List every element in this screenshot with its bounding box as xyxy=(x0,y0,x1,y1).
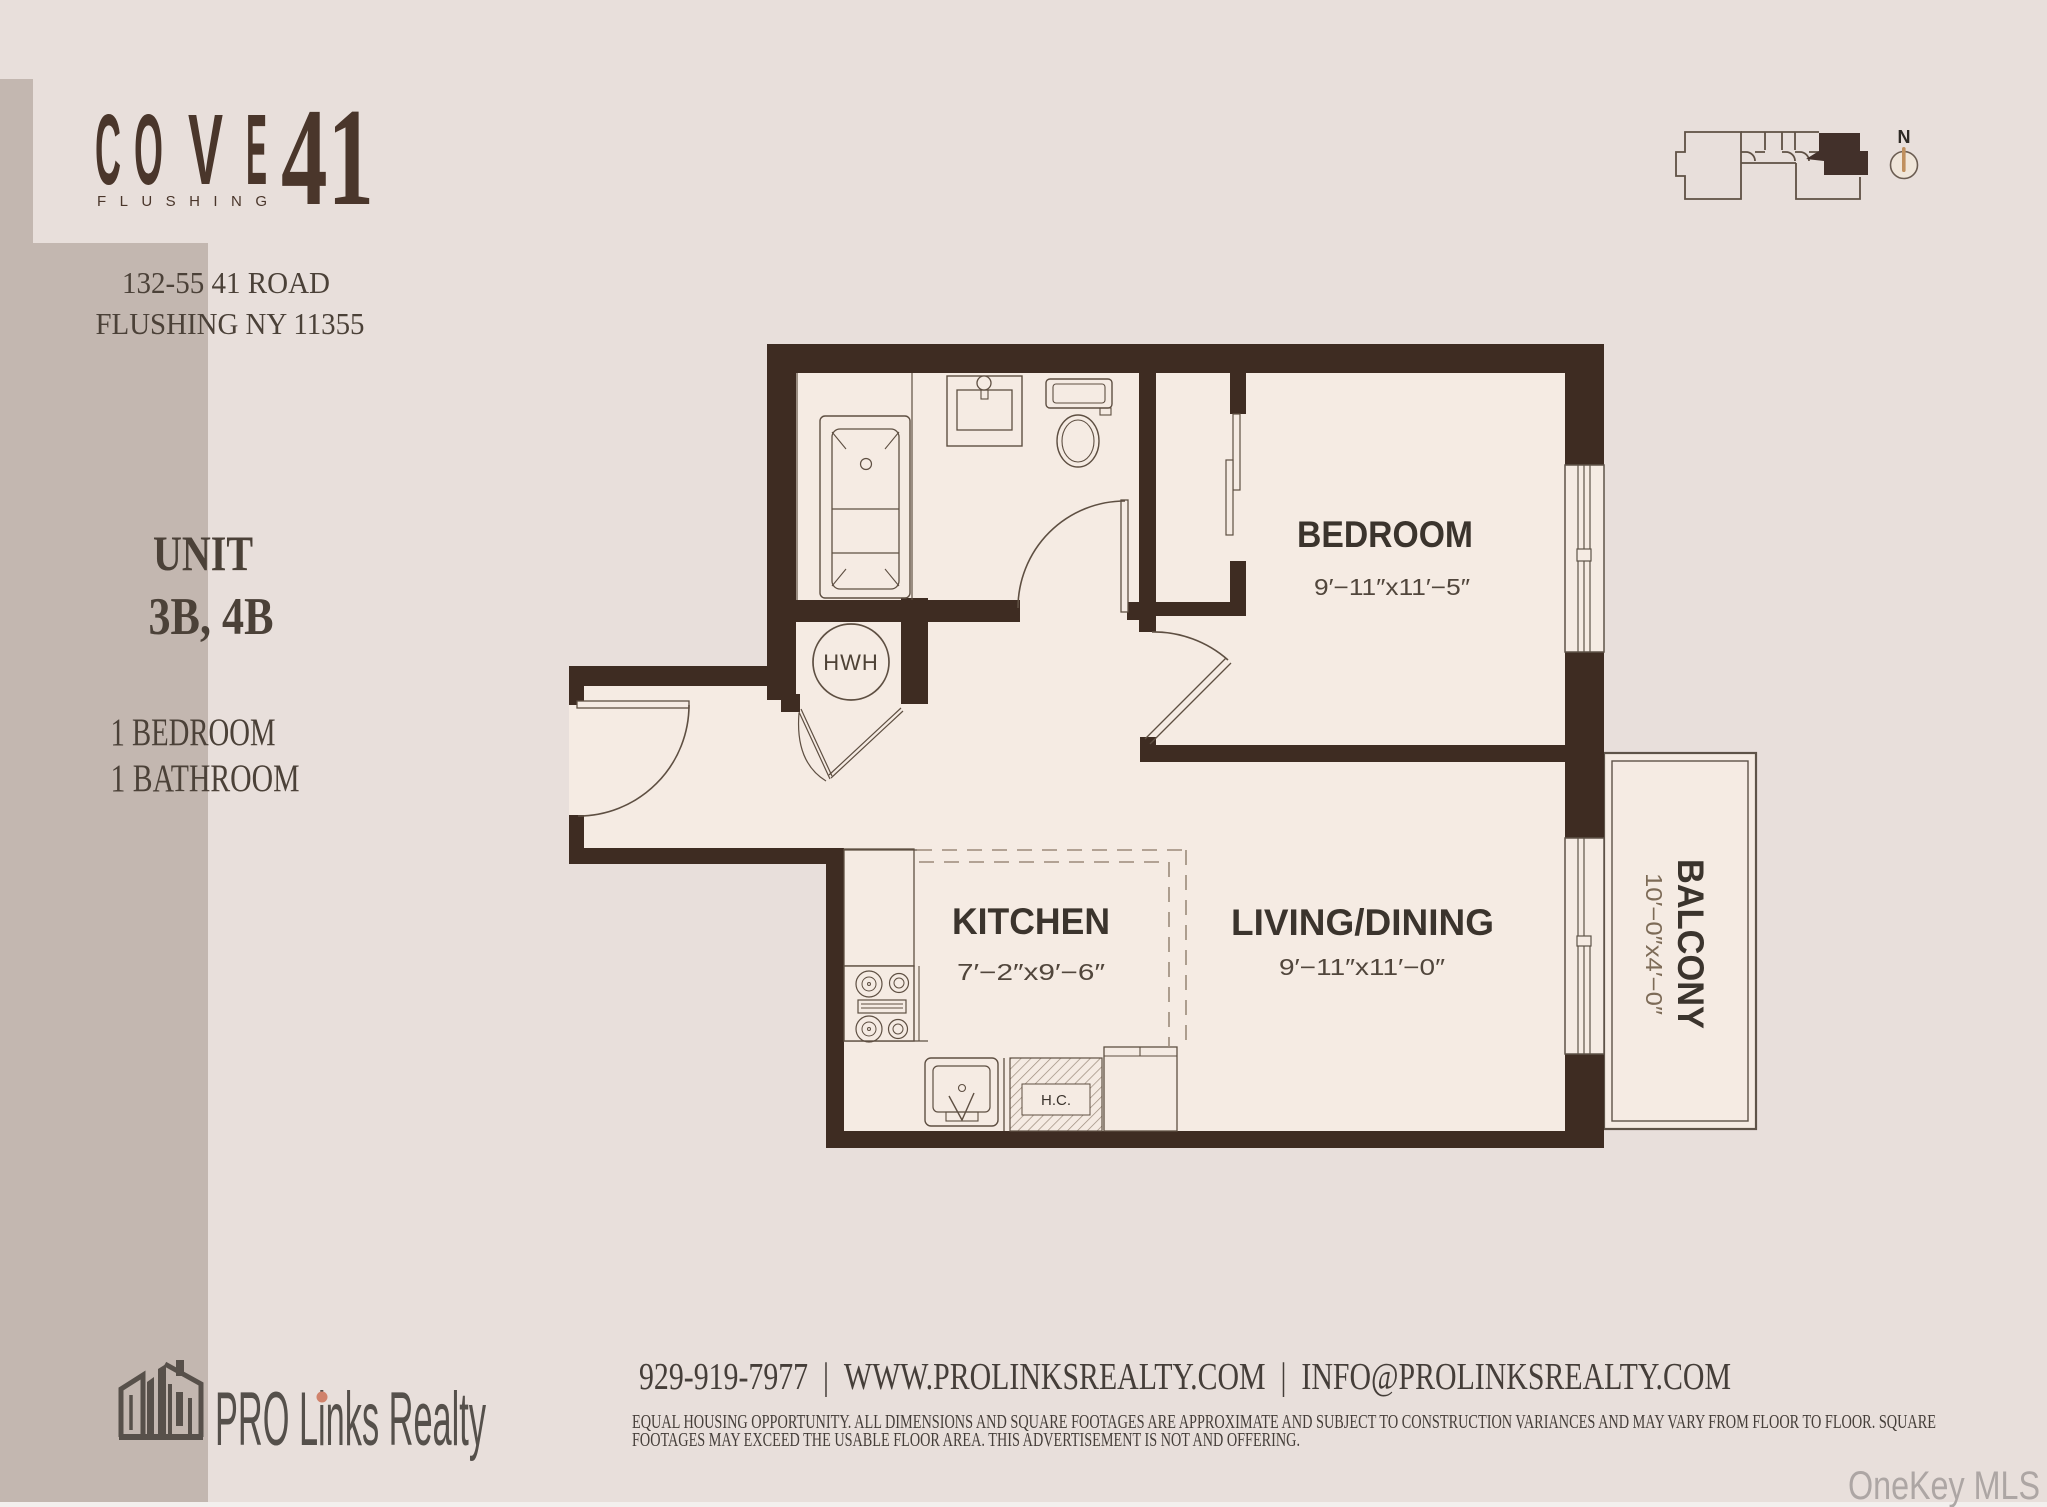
svg-text:H.C.: H.C. xyxy=(1041,1092,1071,1109)
svg-text:LIVING/DINING: LIVING/DINING xyxy=(1231,902,1494,943)
svg-text:7′−2″x9′−6″: 7′−2″x9′−6″ xyxy=(957,959,1105,985)
svg-text:N: N xyxy=(1898,127,1911,147)
svg-text:929-919-7977 | WWW.PROLINKSR: 929-919-7977 | WWW.PROLINKSREALTY.COM | … xyxy=(639,1356,1731,1398)
svg-text:V: V xyxy=(188,94,223,206)
svg-text:132-55 41 ROAD: 132-55 41 ROAD xyxy=(122,265,330,300)
svg-text:FOOTAGES MAY EXCEED THE USABLE: FOOTAGES MAY EXCEED THE USABLE FLOOR ARE… xyxy=(632,1429,1300,1451)
svg-text:BALCONY: BALCONY xyxy=(1670,859,1711,1029)
svg-text:BEDROOM: BEDROOM xyxy=(1297,514,1473,555)
svg-text:HWH: HWH xyxy=(823,650,879,675)
svg-text:PRO Links Realty: PRO Links Realty xyxy=(215,1377,486,1462)
svg-text:C: C xyxy=(95,94,121,206)
svg-text:FLUSHING NY 11355: FLUSHING NY 11355 xyxy=(96,306,365,341)
svg-text:KITCHEN: KITCHEN xyxy=(952,901,1110,942)
svg-text:UNIT: UNIT xyxy=(153,525,253,581)
svg-text:E: E xyxy=(246,94,267,206)
svg-text:3B, 4B: 3B, 4B xyxy=(149,588,274,646)
svg-text:41: 41 xyxy=(281,80,374,235)
svg-text:OneKey MLS: OneKey MLS xyxy=(1848,1464,2040,1507)
svg-text:10′−0″x4′−0″: 10′−0″x4′−0″ xyxy=(1641,873,1667,1015)
svg-text:O: O xyxy=(134,94,163,206)
svg-text:9′−11″x11′−5″: 9′−11″x11′−5″ xyxy=(1314,574,1470,600)
svg-text:9′−11″x11′−0″: 9′−11″x11′−0″ xyxy=(1279,954,1445,980)
svg-text:1 BEDROOM: 1 BEDROOM xyxy=(111,711,276,754)
svg-text:1 BATHROOM: 1 BATHROOM xyxy=(111,757,300,800)
